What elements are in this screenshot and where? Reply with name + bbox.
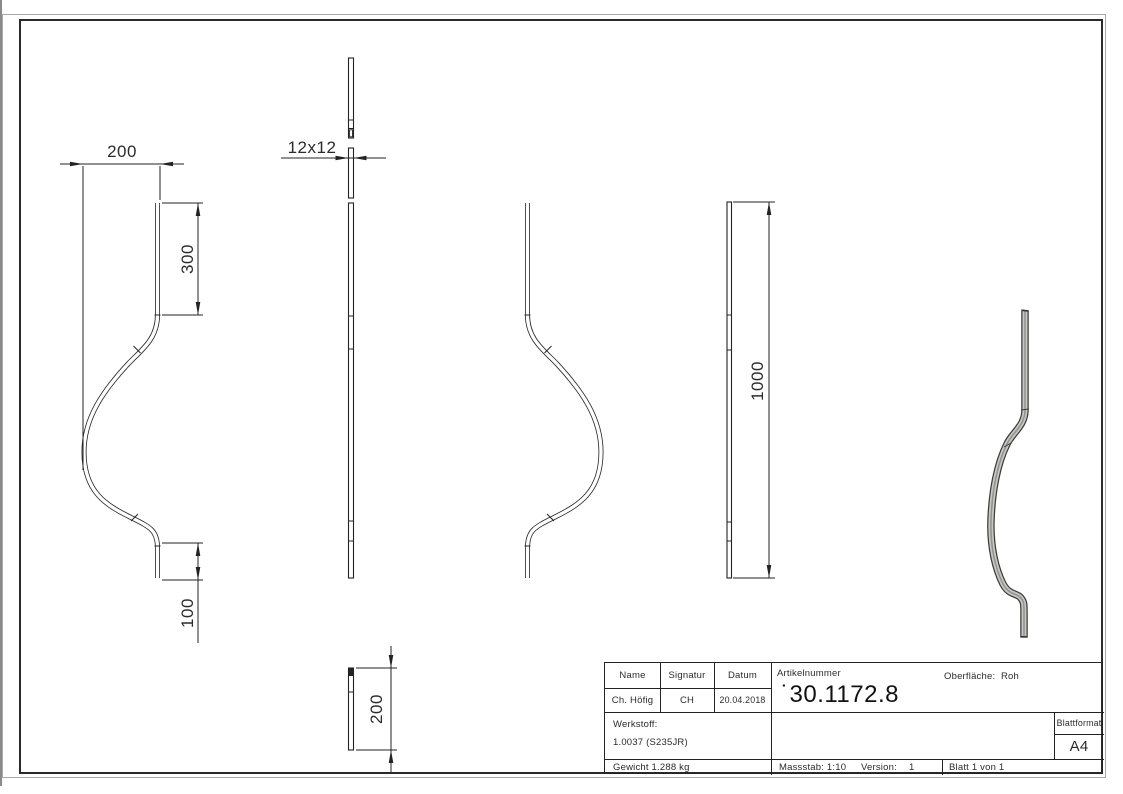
dim-cross-section-label: 12x12 [288, 138, 337, 157]
side-view-stub [349, 148, 354, 198]
dim-width-200: 200 [60, 142, 184, 470]
side-view-bar [349, 203, 354, 578]
top-view-bar [349, 58, 354, 138]
signatur-value: CH [660, 688, 714, 712]
massstab-value: Massstab: 1:10 [779, 759, 859, 775]
titleblock-line [605, 712, 1104, 713]
mirror-view-bend-ticks [525, 315, 555, 546]
artikelnummer-label: Artikelnummer [777, 666, 897, 680]
dim-bottom-leg-100-label: 100 [178, 598, 197, 628]
dim-bottom-leg-100: 100 [162, 543, 203, 643]
height-view: 1000 [727, 202, 775, 578]
name-value: Ch. Höfig [605, 688, 660, 712]
version-value: 1 [909, 759, 929, 775]
dim-total-height-1000: 1000 [733, 202, 775, 578]
dim-depth-200: 200 [356, 646, 397, 772]
dim-cross-section-12x12: 12x12 [281, 138, 386, 160]
blattformat-label: Blattformat [1054, 712, 1104, 734]
bottom-view-end-section [349, 668, 354, 676]
artikelnummer-value: ˙30.1172.8 [781, 681, 899, 709]
titleblock-line [942, 759, 943, 775]
title-block: Name Signatur Datum Ch. Höfig CH 20.04.2… [604, 662, 1103, 774]
datum-label: Datum [714, 663, 771, 688]
dim-top-leg-300: 300 [162, 203, 203, 315]
datum-value: 20.04.2018 [714, 688, 771, 712]
drawing-sheet-screenshot: 200 300 100 [0, 0, 1123, 794]
isometric-view [991, 310, 1029, 637]
dim-top-leg-300-label: 300 [178, 244, 197, 274]
werkstoff-label: Werkstoff: [613, 717, 763, 731]
front-view [84, 203, 161, 578]
bottom-view-bar [349, 668, 354, 750]
blattformat-value: A4 [1054, 734, 1104, 759]
version-label: Version: [861, 759, 906, 775]
name-label: Name [605, 663, 660, 688]
oberflaeche-value: Roh [1001, 669, 1041, 683]
bottom-view: 200 [349, 646, 398, 772]
blatt-value: Blatt 1 von 1 [949, 759, 1049, 775]
front-view-bend-ticks [131, 315, 161, 546]
mirror-view-bar-outline [528, 203, 602, 578]
mirror-view-bar-fill [528, 203, 602, 578]
werkstoff-value: 1.0037 (S235JR) [613, 735, 763, 749]
dim-width-200-label: 200 [107, 142, 137, 161]
dim-depth-200-label: 200 [367, 694, 386, 724]
side-view-column [349, 58, 354, 578]
gewicht-value: Gewicht 1.288 kg [613, 759, 763, 775]
signatur-label: Signatur [660, 663, 714, 688]
mirror-view [525, 203, 602, 578]
dim-total-height-label: 1000 [748, 361, 767, 401]
front-view-bar-fill [84, 203, 158, 578]
front-view-bar-outline [84, 203, 158, 578]
